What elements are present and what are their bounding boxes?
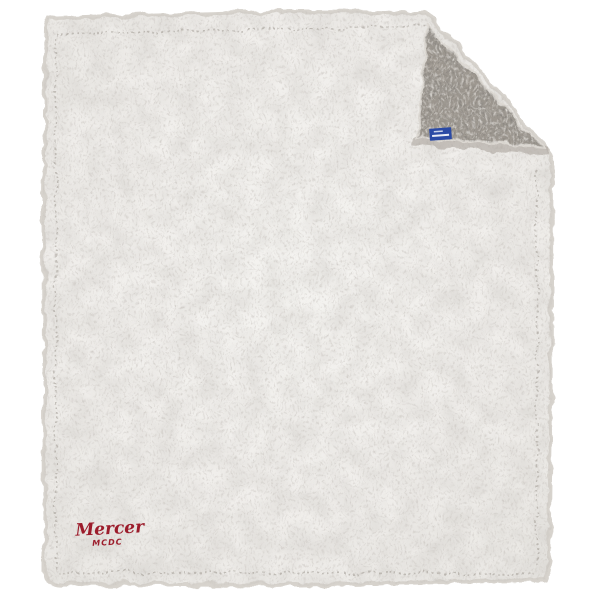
brand-tag [429, 127, 452, 141]
product-photo-canvas: Mercer MCDC [0, 0, 600, 600]
blanket-product-photo: Mercer MCDC [0, 0, 600, 600]
blanket [44, 12, 552, 586]
logo-acronym-text: MCDC [92, 537, 123, 548]
